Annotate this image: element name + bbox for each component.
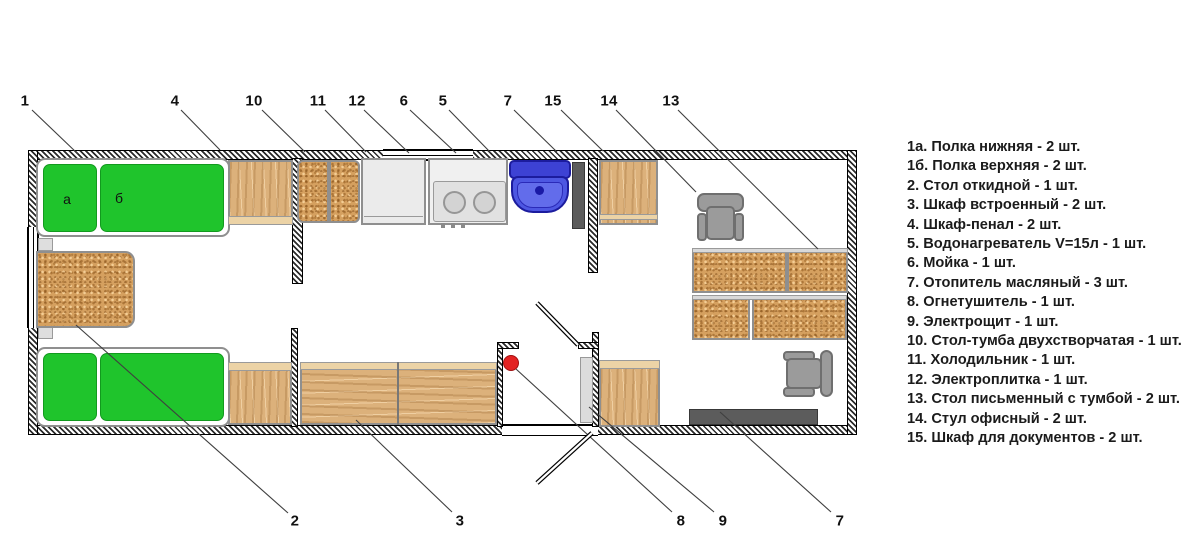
desk-row2-left (692, 295, 750, 340)
floor-plan-diagram: а б (0, 0, 1200, 547)
cabinet-shelf-line (599, 214, 658, 220)
legend-item: 11. Холодильник - 1 шт. (907, 351, 1197, 370)
legend-item: 9. Электрощит - 1 шт. (907, 313, 1197, 332)
desk-edge (692, 248, 848, 253)
callout-10: 10 (245, 93, 262, 110)
fridge (361, 158, 426, 225)
callout-11: 11 (310, 93, 326, 110)
entrance-door-opening (502, 424, 598, 436)
burner-left (443, 191, 466, 214)
shelf-label-a: а (63, 191, 71, 207)
cabinet-table-right-door (329, 160, 360, 223)
tall-cabinet-top (228, 160, 293, 225)
partition-left-bottom (291, 328, 298, 427)
wall-right (847, 150, 857, 435)
hotplate-knob (451, 223, 455, 228)
document-cabinet-top (599, 160, 658, 225)
legend-item: 7. Отопитель масляный - 3 шт. (907, 274, 1197, 293)
hotplate-knob (441, 223, 445, 228)
legend-item: 1а. Полка нижняя - 2 шт. (907, 138, 1197, 157)
tall-cabinet-bottom (228, 362, 292, 425)
wardrobe-divider (397, 362, 399, 425)
legend-item: 5. Водонагреватель V=15л - 1 шт. (907, 235, 1197, 254)
legend-item: 6. Мойка - 1 шт. (907, 254, 1197, 273)
callout-5: 5 (439, 93, 448, 110)
callout-2: 2 (291, 513, 300, 530)
cabinet-shelf-line (599, 360, 660, 369)
legend-item: 13. Стол письменный с тумбой - 2 шт. (907, 390, 1197, 409)
legend: 1а. Полка нижняя - 2 шт.1б. Полка верхня… (907, 138, 1197, 449)
oil-heater-kitchen (572, 162, 585, 229)
fridge-door-line (364, 216, 423, 218)
legend-item: 10. Стол-тумба двухстворчатая - 1 шт. (907, 332, 1197, 351)
shelf-upper-bottom (100, 353, 224, 421)
callout-12: 12 (348, 93, 365, 110)
legend-item: 15. Шкаф для документов - 2 шт. (907, 429, 1197, 448)
vestibule-wall (497, 348, 503, 427)
callout-14: 14 (600, 93, 617, 110)
callout-7: 7 (504, 93, 513, 110)
fire-extinguisher (503, 355, 519, 371)
cabinet-table-left-door (297, 160, 329, 223)
built-in-wardrobe (300, 362, 497, 425)
legend-item: 4. Шкаф-пенал - 2 шт. (907, 216, 1197, 235)
callout-15: 15 (544, 93, 561, 110)
document-cabinet-bottom (599, 360, 660, 427)
partition-middle-stub (578, 342, 599, 349)
cabinet-edge (228, 362, 292, 371)
callout-3: 3 (456, 513, 465, 530)
legend-item: 3. Шкаф встроенный - 2 шт. (907, 196, 1197, 215)
legend-item: 2. Стол откидной - 1 шт. (907, 177, 1197, 196)
shelf-lower-bottom (43, 353, 97, 421)
oil-heater-office (689, 409, 818, 425)
legend-item: 8. Огнетушитель - 1 шт. (907, 293, 1197, 312)
office-chair-2-seat (786, 358, 822, 389)
callout-13: 13 (662, 93, 679, 110)
callout-8: 8 (677, 513, 686, 530)
callout-7: 7 (836, 513, 845, 530)
desk-edge (692, 295, 847, 300)
folding-table-bracket-top (38, 238, 53, 251)
cabinet-edge (228, 216, 293, 225)
burner-right (473, 191, 496, 214)
office-chair-1-seat (706, 206, 735, 240)
desk-row1-left (692, 248, 787, 293)
desk-row1-right (787, 248, 848, 293)
partition-middle-top (588, 158, 598, 273)
office-chair-1-armrest (734, 213, 744, 241)
hotplate-knob (461, 223, 465, 228)
legend-item: 14. Стул офисный - 2 шт. (907, 410, 1197, 429)
sink-drain (535, 186, 544, 195)
callout-6: 6 (400, 93, 409, 110)
shelf-label-b: б (115, 190, 123, 206)
electric-panel (580, 357, 593, 423)
folding-table-bracket-bottom (38, 327, 53, 339)
legend-item: 1б. Полка верхняя - 2 шт. (907, 157, 1197, 176)
legend-item: 12. Электроплитка - 1 шт. (907, 371, 1197, 390)
folding-table (36, 251, 135, 328)
callout-4: 4 (171, 93, 180, 110)
callout-1: 1 (21, 93, 30, 110)
callout-9: 9 (719, 513, 728, 530)
desk-row2-right (752, 295, 847, 340)
